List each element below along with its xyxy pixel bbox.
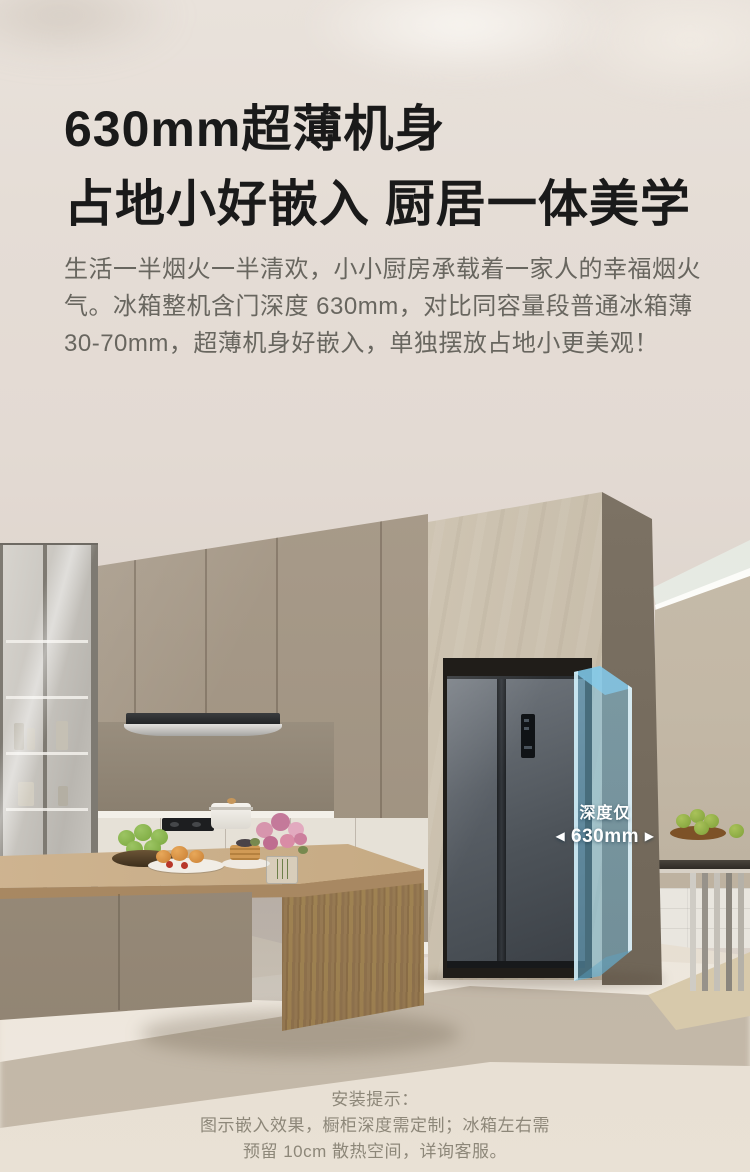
install-note-line-3: 预留 10cm 散热空间，详询客服。: [0, 1139, 750, 1165]
depth-callout-title: 深度仅: [540, 804, 670, 824]
range-hood-glass: [126, 713, 280, 724]
stem: [287, 859, 288, 879]
shelf: [6, 696, 88, 699]
strawberry: [166, 861, 173, 868]
bottle: [27, 728, 35, 750]
depth-callout-dimension: ◀ 630mm ▶: [540, 824, 670, 849]
install-note-line-2: 图示嵌入效果，橱柜深度需定制；冰箱左右需: [0, 1113, 750, 1139]
apple: [134, 824, 152, 841]
install-note: 安装提示： 图示嵌入效果，橱柜深度需定制；冰箱左右需 预留 10cm 散热空间，…: [0, 1087, 750, 1165]
glass-cabinet: [0, 545, 98, 907]
depth-value: 630mm: [571, 826, 639, 847]
pancake-stack: [230, 845, 260, 860]
strawberry: [181, 862, 188, 869]
rose: [280, 834, 295, 848]
green-fruit: [694, 821, 709, 835]
rose: [263, 836, 278, 850]
flower-vase: [266, 856, 298, 884]
jar: [18, 782, 34, 806]
table-leg: [702, 873, 708, 991]
leaf: [298, 846, 308, 854]
jar: [58, 786, 68, 806]
green-fruit: [729, 824, 744, 838]
green-fruit: [676, 814, 691, 828]
stem: [277, 859, 278, 879]
table-leg: [738, 873, 744, 991]
glass-frame: [0, 545, 3, 907]
island-cabinet-seam: [118, 894, 120, 1010]
burner: [192, 822, 201, 827]
bottle: [56, 721, 68, 750]
pot-knob: [227, 798, 236, 804]
display-segment: [524, 727, 529, 730]
shelf: [6, 752, 88, 755]
fridge-base: [447, 961, 585, 968]
table-leg: [726, 873, 732, 991]
bottle: [14, 723, 24, 750]
leaf: [250, 838, 260, 846]
promo-page: 630mm超薄机身 占地小好嵌入 厨居一体美学 生活一半烟火一半清欢，小小厨房承…: [0, 0, 750, 1172]
glass-frame: [43, 545, 47, 907]
burner: [170, 822, 179, 827]
stem: [282, 859, 283, 879]
right-arrow-icon: ▶: [645, 829, 655, 843]
range-hood: [124, 724, 282, 736]
table-leg: [714, 873, 720, 991]
pastry: [189, 850, 204, 863]
depth-callout: 深度仅 ◀ 630mm ▶: [540, 804, 670, 849]
display-segment: [524, 746, 532, 749]
install-note-line-1: 安装提示：: [0, 1087, 750, 1113]
pot-lid: [209, 807, 253, 810]
left-arrow-icon: ◀: [555, 829, 565, 843]
pastry: [171, 846, 188, 861]
display-segment: [524, 719, 529, 722]
gas-cooktop: [162, 818, 214, 831]
table-glass-glare: [650, 869, 750, 873]
cooking-pot: [211, 803, 251, 829]
rose: [294, 833, 307, 845]
kitchen-scene: 深度仅 ◀ 630mm ▶: [0, 0, 750, 1172]
shelf: [6, 808, 88, 811]
table-leg: [690, 873, 696, 991]
dining-table: [650, 860, 750, 869]
fridge-display-panel: [521, 714, 535, 758]
shelf: [6, 640, 88, 643]
